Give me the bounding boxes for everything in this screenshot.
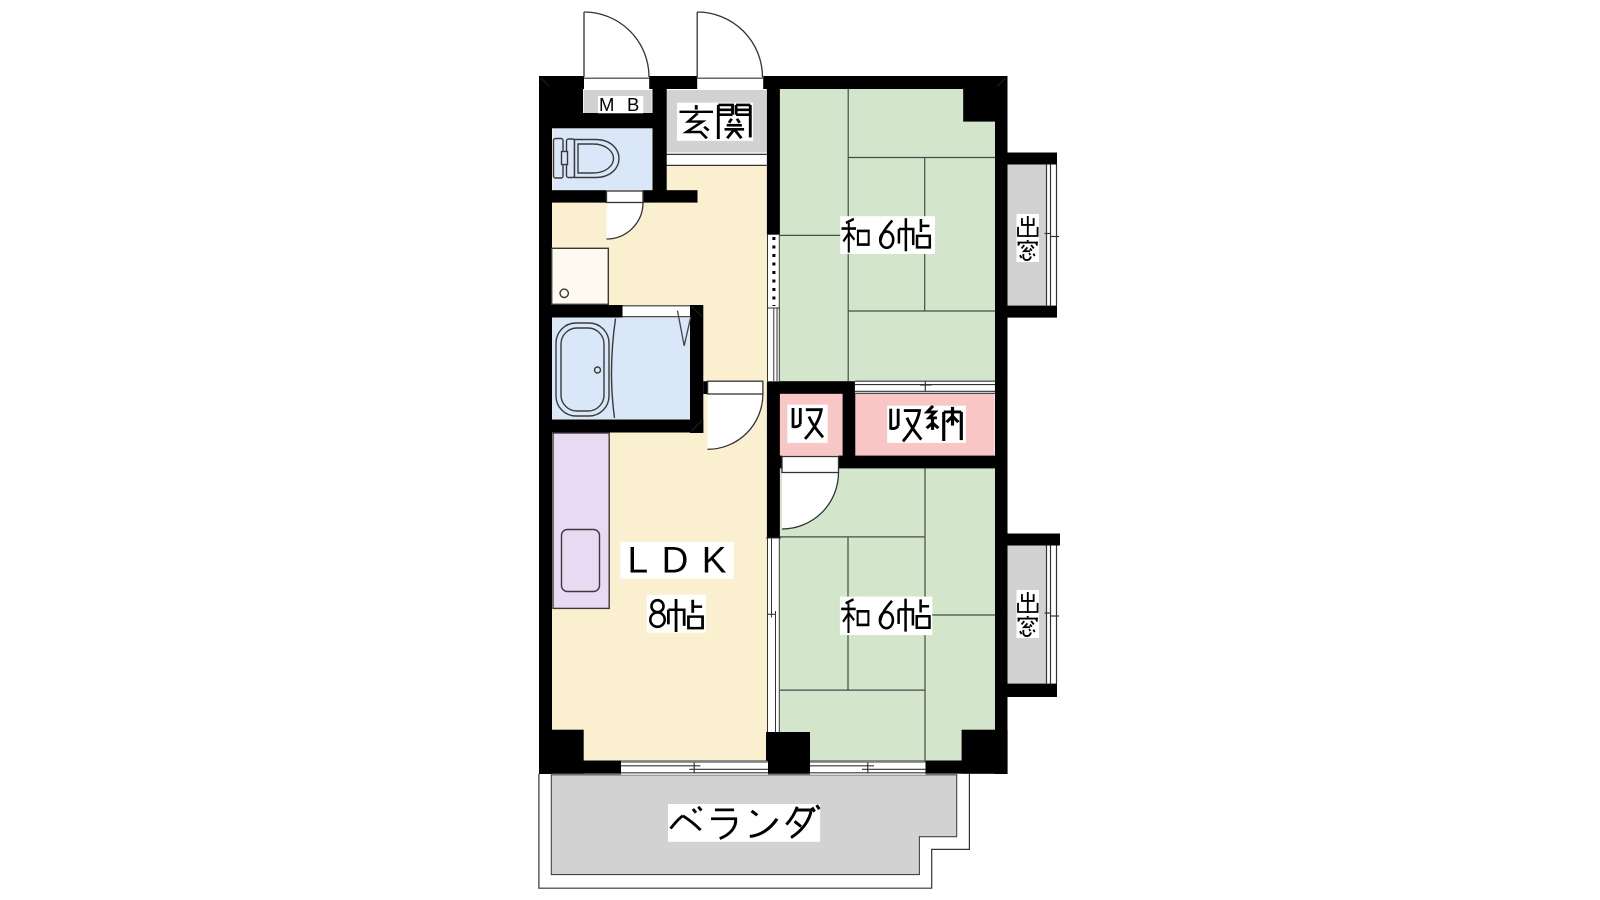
svg-text:LDK: LDK	[628, 540, 740, 581]
svg-text:B: B	[627, 94, 639, 115]
svg-text:M: M	[599, 94, 614, 115]
